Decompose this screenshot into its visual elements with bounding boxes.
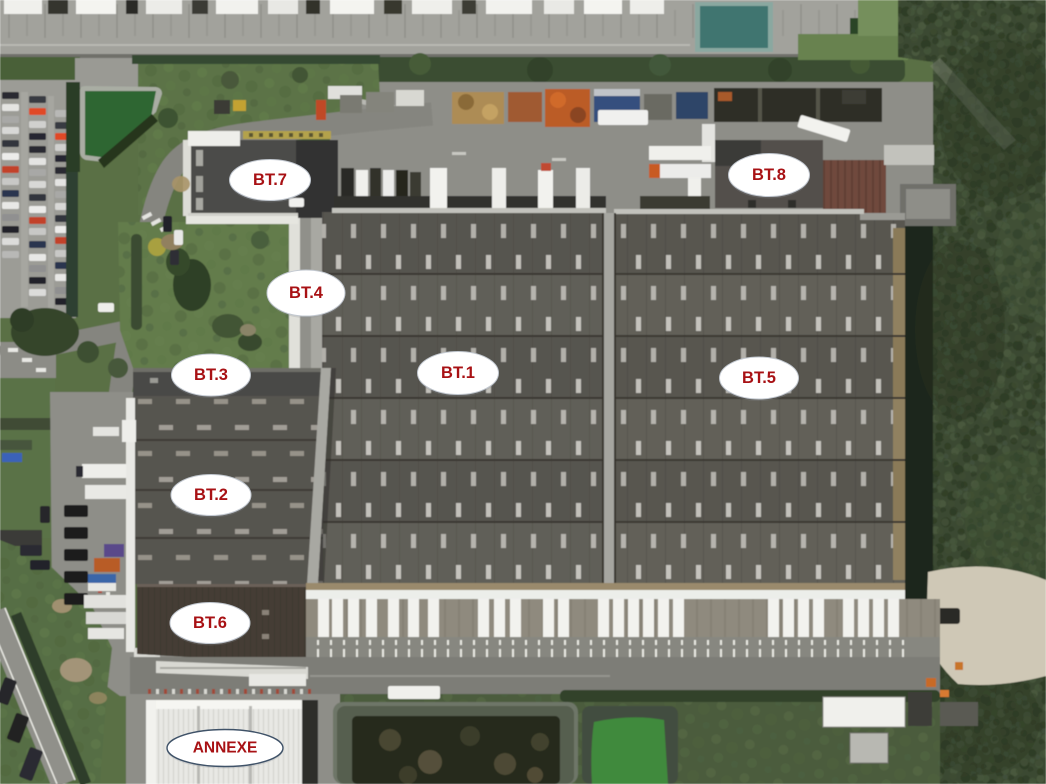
svg-text:ANNEXE: ANNEXE bbox=[193, 740, 258, 757]
svg-text:BT.1: BT.1 bbox=[441, 364, 475, 382]
svg-text:BT.7: BT.7 bbox=[253, 171, 287, 189]
svg-text:BT.8: BT.8 bbox=[752, 166, 786, 184]
svg-text:BT.6: BT.6 bbox=[193, 614, 227, 632]
svg-text:BT.5: BT.5 bbox=[742, 369, 776, 387]
svg-text:BT.2: BT.2 bbox=[194, 486, 228, 504]
svg-text:BT.3: BT.3 bbox=[194, 366, 228, 384]
svg-text:BT.4: BT.4 bbox=[289, 284, 324, 302]
